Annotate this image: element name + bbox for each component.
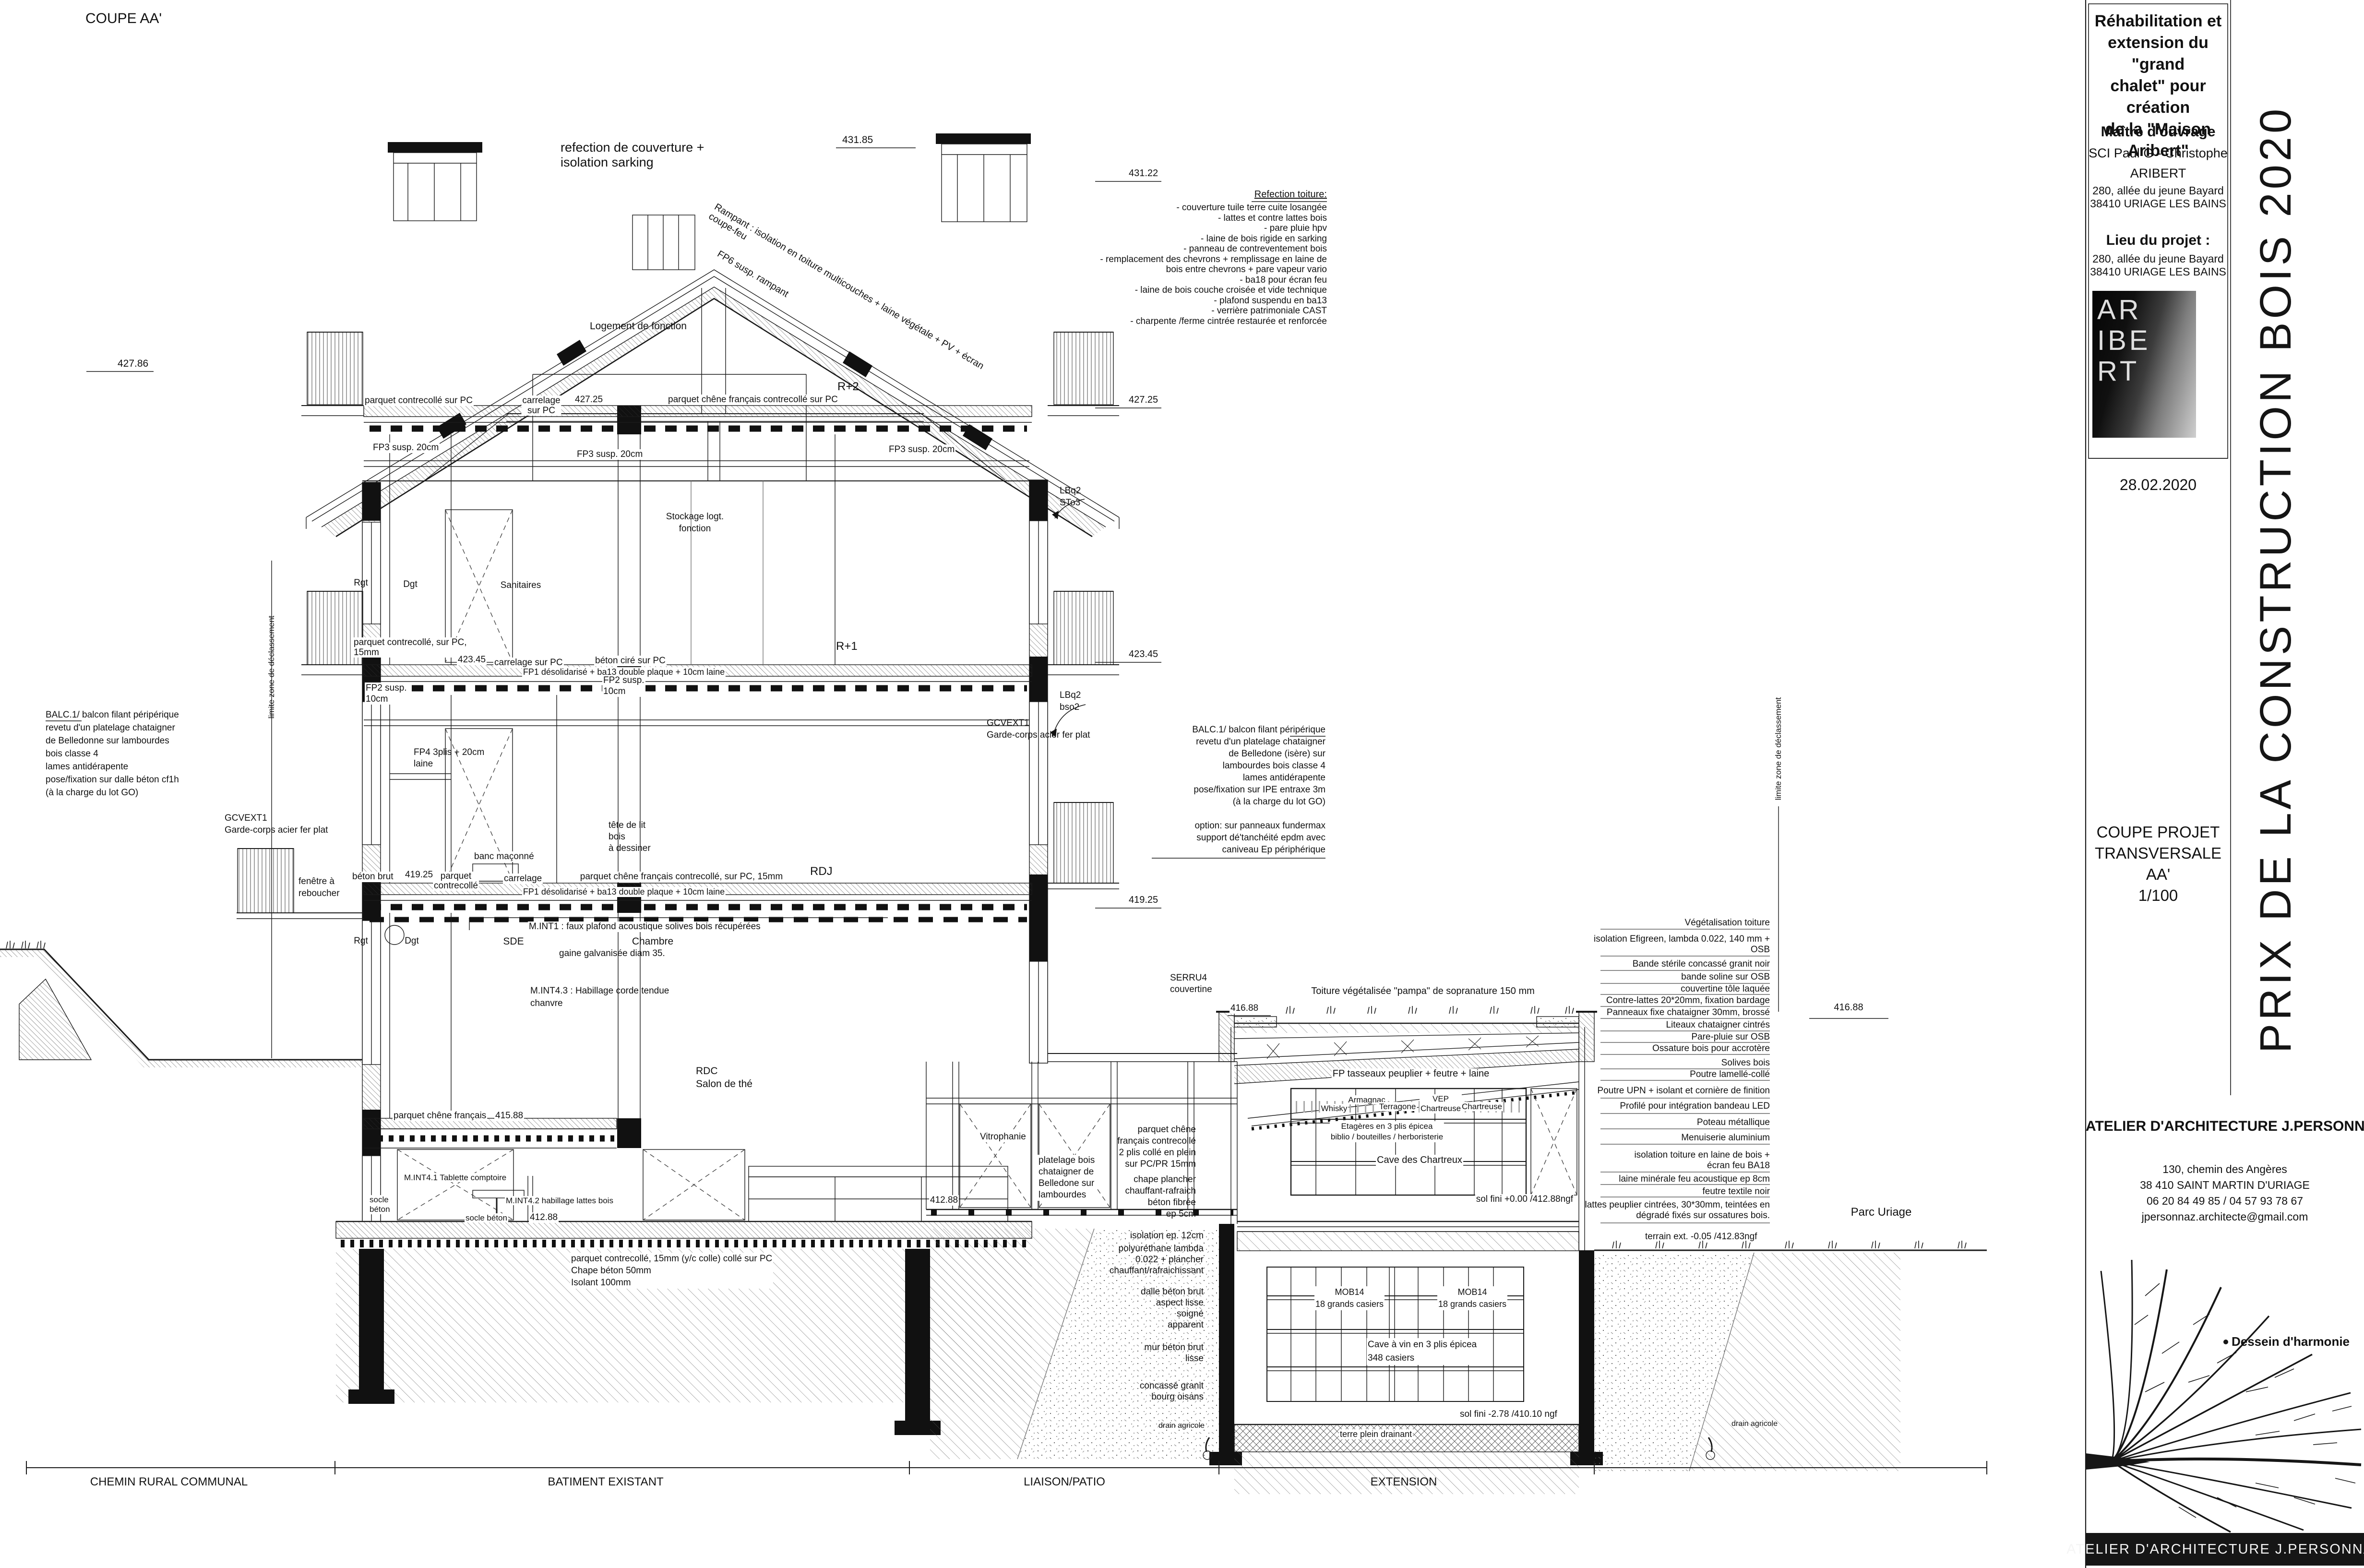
gcvext1-left: GCVEXT1 Garde-corps acier fer plat <box>225 812 328 836</box>
fp3-left: FP3 susp. 20cm <box>372 443 440 453</box>
zone-liaison-patio: LIAISON/PATIO <box>1024 1475 1105 1488</box>
room-rdc: RDC Salon de thé <box>696 1065 752 1090</box>
note-terre-plein: terre plein drainant <box>1339 1429 1413 1439</box>
client-heading: Maître d'ouvrage <box>2089 124 2228 140</box>
floor-r1-beton-cire: béton ciré sur PC <box>594 656 667 666</box>
elev-412-88-socle: 412.88 <box>529 1212 559 1223</box>
room-sde: SDE <box>503 936 524 947</box>
ext-list-13: Poutre UPN + isolant et cornière de fini… <box>1597 1086 1770 1096</box>
note-mint41: M.INT4.1 Tablette comptoire <box>403 1173 507 1182</box>
date: 28.02.2020 <box>2089 476 2228 494</box>
room-sanitaires: Sanitaires <box>501 580 541 591</box>
zone-extension: EXTENSION <box>1371 1475 1437 1488</box>
note-mint42: M.INT4.2 habillage lattes bois <box>505 1196 614 1205</box>
level-rdj: RDJ <box>810 865 833 878</box>
floor-r2-carrelage: carrelage sur PC <box>521 395 561 416</box>
room-stockage: Stockage logt. fonction <box>666 511 724 535</box>
balc1-left: BALC.1/ balcon filant péripérique revetu… <box>46 708 179 799</box>
elev-423-45-rail: 423.45 <box>1129 649 1158 660</box>
level-r1: R+1 <box>836 640 858 653</box>
note-terrain-ext: terrain ext. -0.05 /412.83ngf <box>1645 1232 1757 1242</box>
refection-toiture-heading: Refection toiture: <box>1254 189 1327 200</box>
floor-rdc-parquet: parquet chêne français <box>393 1111 487 1121</box>
limite-right: limite zone de déclassement <box>1774 697 1783 801</box>
tag-serru4: SERRU4 couvertine <box>1170 972 1212 995</box>
balc1-right: BALC.1/ balcon filant péripérique revetu… <box>1192 724 1325 856</box>
drawing-title: COUPE PROJET TRANSVERSALE AA' 1/100 <box>2089 822 2228 906</box>
shelf-vep-chartreuse: VEP Chartreuse <box>1420 1094 1462 1113</box>
note-socle-1: socle béton <box>369 1195 391 1214</box>
room-dgt-r1: Dgt <box>403 579 418 590</box>
note-platelage: platelage bois chataigner de Belledone s… <box>1038 1155 1096 1201</box>
footer-bar-text: ATELIER D'ARCHITECTURE J.PERSONNAZ <box>2066 1542 2364 1557</box>
floor-r2-elev: 427.25 <box>574 395 604 405</box>
client-name: SCI Paul G - Christophe ARIBERT <box>2089 143 2228 183</box>
elev-431-22: 431.22 <box>1129 168 1158 179</box>
ext-list-20: lattes peuplier cintrées, 30*30mm, teint… <box>1585 1200 1770 1221</box>
note-dalle-beton: dalle béton brut aspect lisse soigné app… <box>1141 1286 1204 1330</box>
elev-sol-fini-ext: sol fini +0.00 /412.88ngf <box>1475 1194 1574 1205</box>
note-fenetre-reboucher: fenêtre à reboucher <box>298 875 340 899</box>
ext-list-11: Solives bois <box>1721 1058 1770 1068</box>
ext-list-19: feutre textile noir <box>1703 1186 1770 1197</box>
room-dgt-rdj: Dgt <box>405 936 419 946</box>
section-title: COUPE AA' <box>85 11 162 27</box>
room-logement-de-fonction: Logement de fonction <box>590 321 687 332</box>
tag-mob14-right: MOB14 18 grands casiers <box>1437 1286 1507 1310</box>
drawing-sheet: COUPE AA'refection de couverture + isola… <box>0 0 2364 1568</box>
note-polyurethane: polyuréthane lambda 0.022 + plancher cha… <box>1110 1243 1204 1276</box>
room-rgt-rdj: Rgt <box>354 936 368 946</box>
floor-rdc-elev: 415.88 <box>494 1111 524 1121</box>
shelf-chartreuse: Chartreuse <box>1461 1102 1503 1111</box>
note-chape-ext: chape plancher chauffant-rafraich béton … <box>1125 1174 1196 1220</box>
note-vitrophanie: Vitrophanie <box>979 1132 1027 1142</box>
ext-list-4: bande soline sur OSB <box>1681 972 1770 982</box>
room-chambre: Chambre <box>632 936 673 947</box>
note-rampant: Rampant : isolation en toiture multicouc… <box>707 202 986 381</box>
note-mint43: M.INT4.3 : Habillage corde tendue chanvr… <box>530 985 669 1010</box>
ext-list-7: Panneaux fixe chataigner 30mm, brossé <box>1607 1007 1770 1018</box>
floor-rdj-beton-brut: béton brut <box>351 872 394 882</box>
tag-mob14-left: MOB14 18 grands casiers <box>1314 1286 1385 1310</box>
floor-rdj-parquet-chene: parquet chêne français contrecollé, sur … <box>579 872 784 882</box>
room-cave-des-chartreux: Cave des Chartreux <box>1376 1155 1463 1166</box>
elev-416-88-right: 416.88 <box>1834 1002 1863 1013</box>
room-rgt-r1: Rgt <box>354 578 368 588</box>
fp3-mid: FP3 susp. 20cm <box>576 449 644 460</box>
elev-427-86: 427.86 <box>118 358 148 370</box>
aribert-photo: AR IBE RT <box>2092 291 2196 438</box>
location-address: 280, allée du jeune Bayard 38410 URIAGE … <box>2089 252 2228 278</box>
note-toiture-vegetalisee: Toiture végétalisée "pampa" de sopranatu… <box>1311 986 1535 997</box>
note-isolation-cave: isolation ep. 12cm <box>1130 1231 1204 1241</box>
fp3-right: FP3 susp. 20cm <box>888 444 955 455</box>
level-r2: R+2 <box>837 380 859 393</box>
area-parc-uriage: Parc Uriage <box>1851 1206 1912 1219</box>
note-cave-a-vin: Cave à vin en 3 plis épicea 348 casiers <box>1367 1338 1478 1365</box>
elev-412-88-liaison: 412.88 <box>929 1195 959 1206</box>
floor-r2-parquet: parquet contrecollé sur PC <box>364 395 474 406</box>
floor-rdj-parquet: parquet contrecollé <box>433 872 479 891</box>
floor-rdj-carrelage: carrelage <box>503 874 543 884</box>
note-parquet-ext: parquet chêne français contrecollé 2 pli… <box>1117 1124 1196 1170</box>
footer-bar: ATELIER D'ARCHITECTURE J.PERSONNAZ <box>2086 1533 2364 1566</box>
ext-list-9: Pare-pluie sur OSB <box>1691 1032 1770 1042</box>
client-address: 280, allée du jeune Bayard 38410 URIAGE … <box>2089 184 2228 210</box>
firm-address: 130, chemin des Angères 38 410 SAINT MAR… <box>2086 1161 2364 1225</box>
fp2-left: FP2 susp. 10cm <box>365 682 408 705</box>
note-mint1: M.INT1 : faux plafond acoustique solives… <box>528 922 762 932</box>
ext-list-6: Contre-lattes 20*20mm, fixation bardage <box>1606 995 1770 1006</box>
floor-r1-parquet: parquet contrecollé, sur PC, 15mm <box>353 637 468 658</box>
shelf-whisky: Whisky <box>1320 1104 1349 1113</box>
note-fp-tasseaux: FP tasseaux peuplier + feutre + laine <box>1332 1068 1491 1079</box>
elev-419-25-rail: 419.25 <box>1129 895 1158 906</box>
zone-batiment-existant: BATIMENT EXISTANT <box>548 1475 663 1488</box>
ext-list-17: isolation toiture en laine de bois + écr… <box>1634 1150 1770 1171</box>
tag-lbq2-sto3: LBq2 STo3 <box>1060 485 1081 509</box>
ext-list-15: Poteau métallique <box>1697 1117 1770 1128</box>
fp2-mid: FP2 susp. 10cm <box>602 675 645 697</box>
ext-list-2: isolation Efigreen, lambda 0.022, 140 mm… <box>1594 934 1770 955</box>
limite-left: limite zone de déclassement <box>267 616 276 719</box>
floor-r1-carrelage: carrelage sur PC <box>493 658 564 668</box>
note-drain-right: drain agricole <box>1731 1420 1778 1428</box>
note-etageres: Etagères en 3 plis épicea biblio / boute… <box>1330 1121 1444 1142</box>
refection-toiture-list: - couverture tuile terre cuite losangée … <box>1100 203 1327 326</box>
note-banc-maconne: banc maçonné <box>473 851 535 862</box>
ext-list-10: Ossature bois pour accrotère <box>1652 1043 1770 1054</box>
logo-tagline: Dessein d'harmonie <box>2231 1334 2351 1349</box>
note-tete-de-lit: tête de lit bois à dessiner <box>609 820 651 854</box>
elev-431-85: 431.85 <box>842 134 873 146</box>
shelf-terragone: Terragone <box>1378 1102 1417 1111</box>
ext-list-12: Poutre lamellé-collé <box>1690 1069 1770 1080</box>
tag-lbq2-bso2: LBq2 bso2 <box>1060 689 1081 713</box>
elev-416-88-left: 416.88 <box>1230 1003 1259 1014</box>
note-mur-beton: mur béton brut lisse <box>1144 1342 1204 1364</box>
zone-chemin-rural: CHEMIN RURAL COMMUNAL <box>90 1475 248 1488</box>
fp4-note: FP4 3plis + 20cm laine <box>414 747 484 770</box>
floor-r2-parquet-chene: parquet chêne français contrecollé sur P… <box>667 395 839 405</box>
ext-list-16: Menuiserie aluminium <box>1681 1133 1770 1143</box>
ext-list-8: Liteaux chataigner cintrés <box>1666 1020 1770 1030</box>
photo-overlay-text: AR IBE RT <box>2097 295 2151 387</box>
elev-sol-fini-cave: sol fini -2.78 /410.10 ngf <box>1459 1409 1558 1420</box>
ext-list-1: Végétalisation toiture <box>1685 918 1770 928</box>
ext-list-14: Profilé pour intégration bandeau LED <box>1620 1101 1770 1112</box>
elev-427-25-rail: 427.25 <box>1129 395 1158 406</box>
location-heading: Lieu du projet : <box>2089 232 2228 249</box>
ext-list-18: laine minérale feu acoustique ep 8cm <box>1619 1174 1770 1185</box>
note-plancher-bas: parquet contrecollé, 15mm (y/c colle) co… <box>570 1253 773 1289</box>
firm-name: ATELIER D'ARCHITECTURE J.PERSONNAZ <box>2086 1118 2364 1135</box>
note-gaine: gaine galvanisée diam 35. <box>559 948 665 959</box>
fp1-rdj: FP1 désolidarisé + ba13 double plaque + … <box>522 887 726 897</box>
competition-banner: PRIX DE LA CONSTRUCTION BOIS 2020 <box>2251 59 2301 1100</box>
floor-rdj-elev: 419.25 <box>404 870 434 880</box>
ext-list-3: Bande stérile concassé granit noir <box>1633 959 1770 970</box>
ext-list-5: couvertine tôle laquée <box>1681 984 1770 994</box>
note-drain-left: drain agricole <box>1158 1422 1205 1430</box>
note-concasse: concassé granit bourg oisans <box>1140 1380 1204 1402</box>
annotation-layer: COUPE AA'refection de couverture + isola… <box>0 0 2364 1568</box>
gcvext1-right: GCVEXT1 Garde-corps acier fer plat <box>987 717 1090 741</box>
floor-r1-elev: 423.45 <box>457 655 487 665</box>
note-refection-couverture: refection de couverture + isolation sark… <box>561 140 704 170</box>
note-socle-2: socle béton <box>465 1213 508 1222</box>
